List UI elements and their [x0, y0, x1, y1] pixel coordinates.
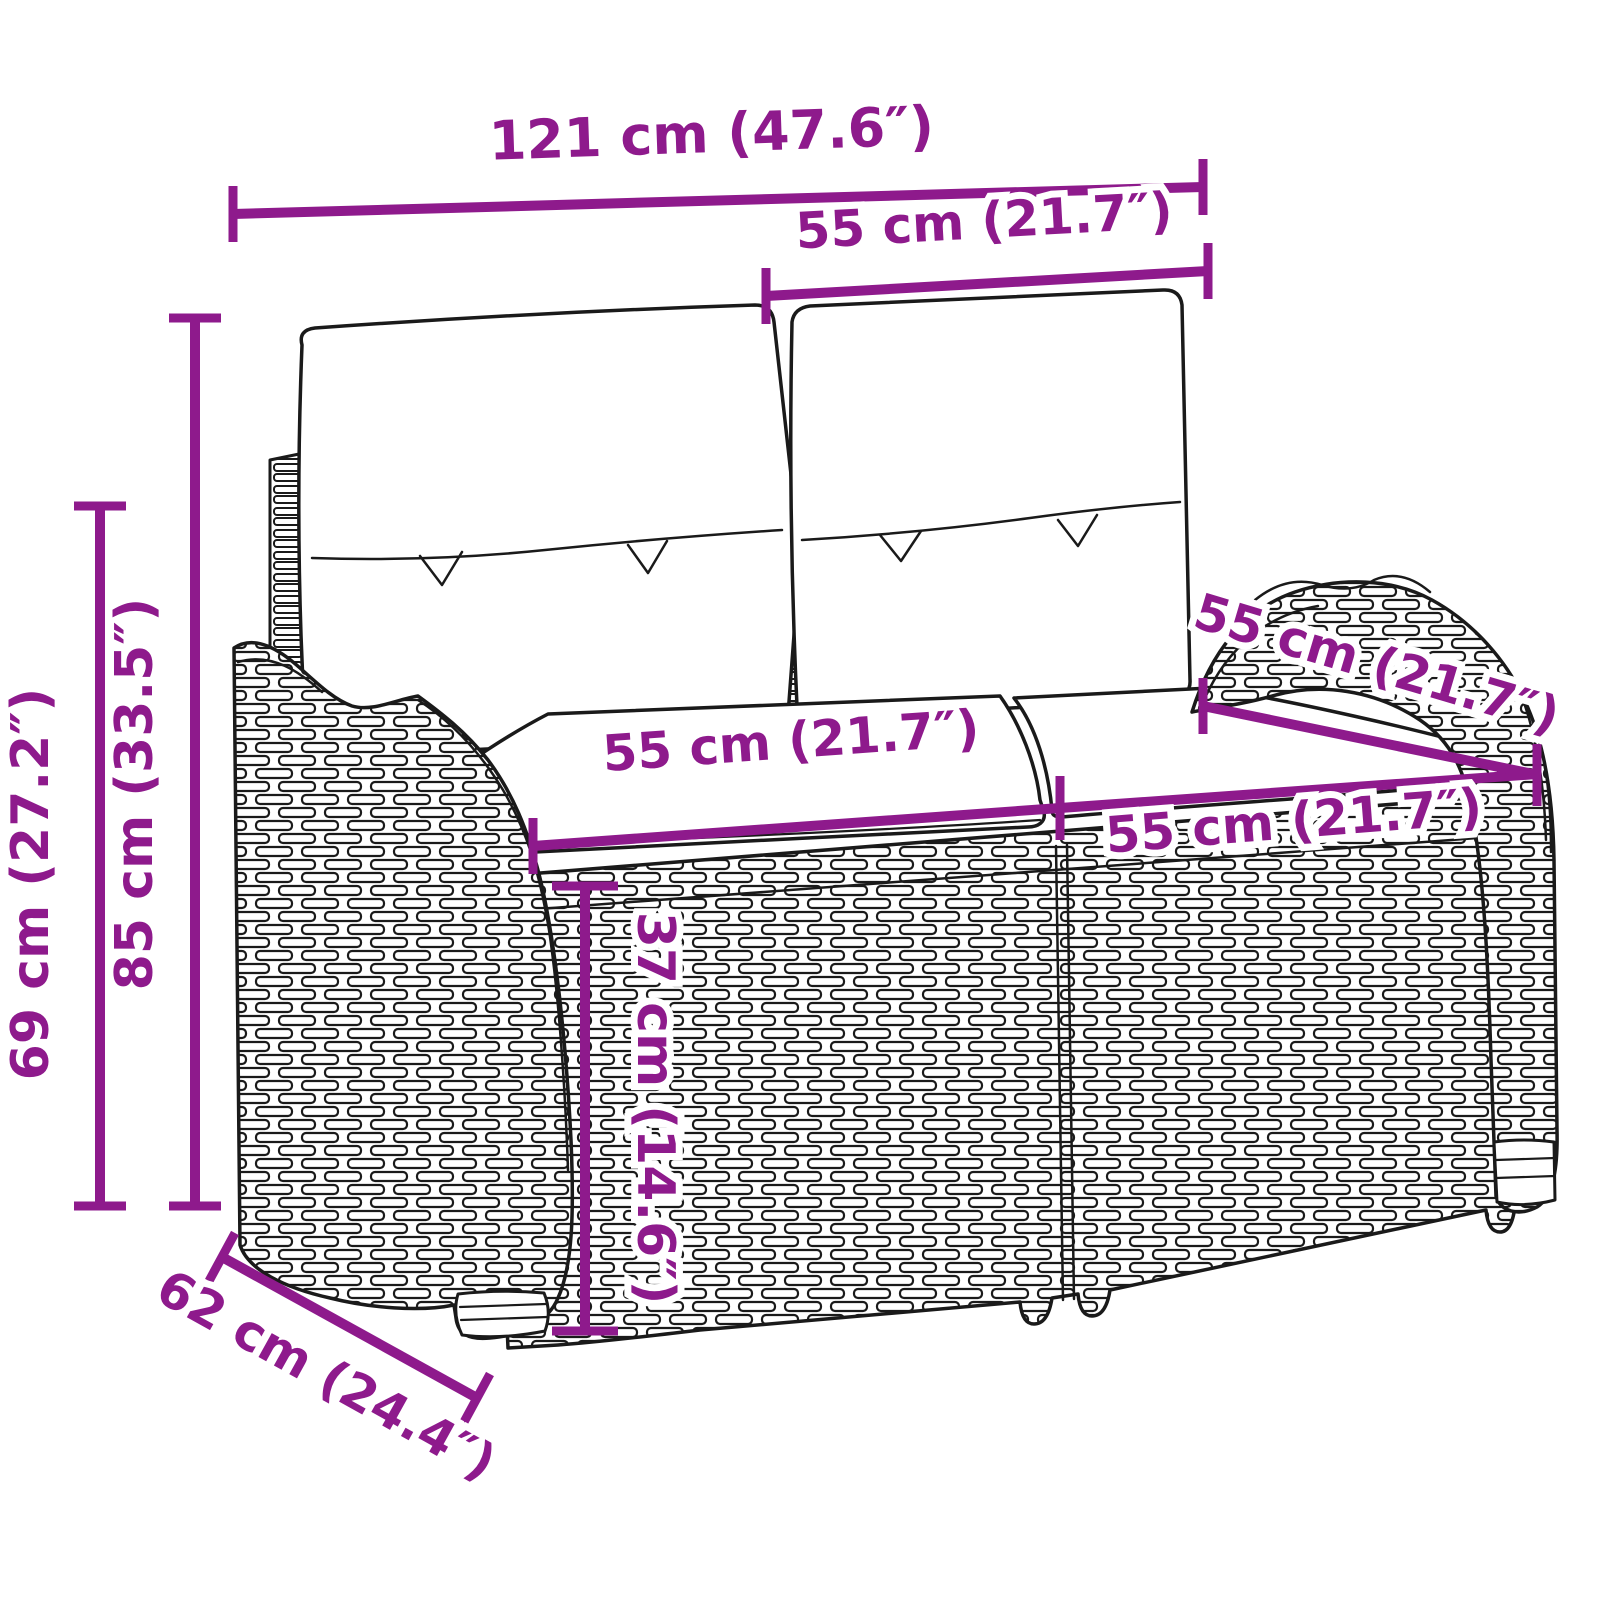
dimension-label-total-height: 85 cm (33.5″) — [105, 598, 165, 991]
dimension-total-height — [169, 318, 221, 1206]
dimension-label-seat-height: 37 cm (14.6″) — [625, 912, 685, 1305]
left-back-cushion — [299, 305, 800, 756]
dimension-label-arm-height: 69 cm (27.2″) — [1, 688, 61, 1081]
diagram-canvas: 121 cm (47.6″) 55 cm (21.7″) 85 cm (33.5… — [0, 0, 1600, 1600]
dimension-label-total-width: 121 cm (47.6″) — [488, 94, 935, 173]
right-back-cushion — [791, 290, 1190, 720]
right-arm-foot — [1494, 1140, 1555, 1205]
left-arm-foot — [456, 1291, 549, 1337]
bench-dimension-diagram: 121 cm (47.6″) 55 cm (21.7″) 85 cm (33.5… — [0, 0, 1600, 1600]
